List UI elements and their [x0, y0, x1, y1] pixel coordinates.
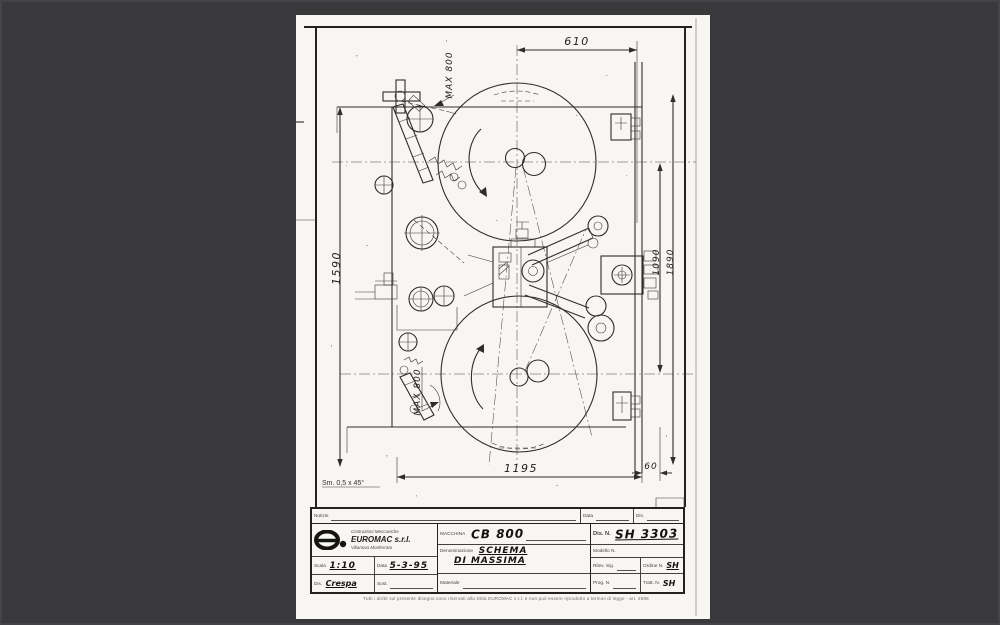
drawing-canvas: 610 MAX 800 1590 1090	[296, 15, 710, 507]
machine-outline	[337, 62, 642, 473]
dimension-1590-label: 1590	[330, 251, 343, 285]
dis-n-label: Dis. N.	[593, 531, 611, 537]
dimension-1090-label: 1090	[652, 249, 662, 276]
centerlines	[332, 45, 696, 465]
prog-line	[613, 577, 636, 589]
right-flange-upper	[611, 114, 640, 140]
denominazione-value2: DI MASSIMA	[454, 556, 526, 566]
dis-n-value: SH 3303	[615, 526, 679, 541]
ordine-value: SH	[666, 561, 678, 570]
copyright-fine-print: Tutti i diritti sul presente disegno son…	[326, 596, 686, 601]
drawing-frame	[296, 27, 692, 507]
right-flange-lower	[613, 392, 640, 420]
right-gearbox	[601, 251, 658, 299]
top-dis-line	[647, 511, 679, 520]
denominazione-value1: SCHEMA	[479, 546, 528, 556]
modello-label: Modello N.	[593, 548, 616, 554]
dimension-1195: 1195	[397, 457, 642, 483]
rilev-label: Rilev. Sig.	[593, 563, 614, 569]
dis-label: Dis.	[314, 581, 322, 587]
materiale-label: Materiale	[440, 580, 460, 586]
upper-left-guide-group	[375, 80, 456, 194]
prog-label: Prog. N.	[593, 580, 610, 586]
dimension-1890-label: 1890	[666, 249, 676, 276]
sost-line	[390, 578, 433, 589]
dimension-1890: 1890	[666, 94, 676, 465]
dimension-60-label: 60	[644, 462, 657, 472]
dimension-max800-top: MAX 800	[434, 51, 455, 106]
scala-label: Scala	[314, 563, 326, 569]
scala-value: 1:10	[330, 561, 356, 571]
top-data-line	[596, 511, 629, 520]
dimension-1195-label: 1195	[504, 462, 538, 475]
tratt-value: SH	[663, 579, 675, 588]
blade-carriage-mechanism	[464, 222, 547, 307]
dimension-max800-bottom: MAX 800	[413, 367, 439, 416]
max800-bottom-label: MAX 800	[413, 368, 423, 415]
top-dis-label: Dis.	[636, 513, 644, 519]
notes-line	[331, 511, 576, 520]
dis-signature: Crespa	[326, 579, 357, 588]
notes-label: Notizie	[314, 513, 329, 519]
company-line3: Villanova Monferrato	[351, 545, 411, 551]
data-value: 5-3-95	[390, 561, 429, 571]
dimension-1590: 1590	[330, 107, 343, 467]
euromac-logo	[314, 530, 348, 550]
chamfer-note: Sm. 0,5 x 45°	[322, 479, 380, 487]
title-block: Notizie Data Dis.	[310, 507, 685, 594]
upper-arm-cylinder	[528, 216, 608, 265]
macchina-line	[526, 528, 586, 541]
sost-label: Sost.	[377, 581, 388, 587]
denominazione-label: Denominazione	[440, 548, 473, 554]
data-label: Data	[377, 563, 387, 569]
technical-drawing-sheet: 610 MAX 800 1590 1090	[296, 15, 710, 619]
ordine-label: Ordine N.	[643, 563, 663, 569]
left-roller-group	[355, 157, 466, 351]
rilev-line	[617, 561, 636, 571]
macchina-label: MACCHINA	[440, 531, 465, 537]
dimension-1090: 1090	[652, 163, 663, 373]
top-data-label: Data	[583, 513, 593, 519]
max800-top-label: MAX 800	[445, 51, 455, 98]
screenshot-viewport: 610 MAX 800 1590 1090	[0, 0, 1000, 625]
macchina-value: CB 800	[471, 527, 524, 542]
tratt-label: Tratt. N.	[643, 580, 660, 586]
dimension-610-label: 610	[564, 35, 590, 48]
materiale-line	[463, 577, 586, 589]
chamfer-note-text: Sm. 0,5 x 45°	[322, 479, 364, 487]
dimension-610: 610	[517, 35, 637, 223]
company-name: EUROMAC s.r.l.	[351, 535, 411, 545]
